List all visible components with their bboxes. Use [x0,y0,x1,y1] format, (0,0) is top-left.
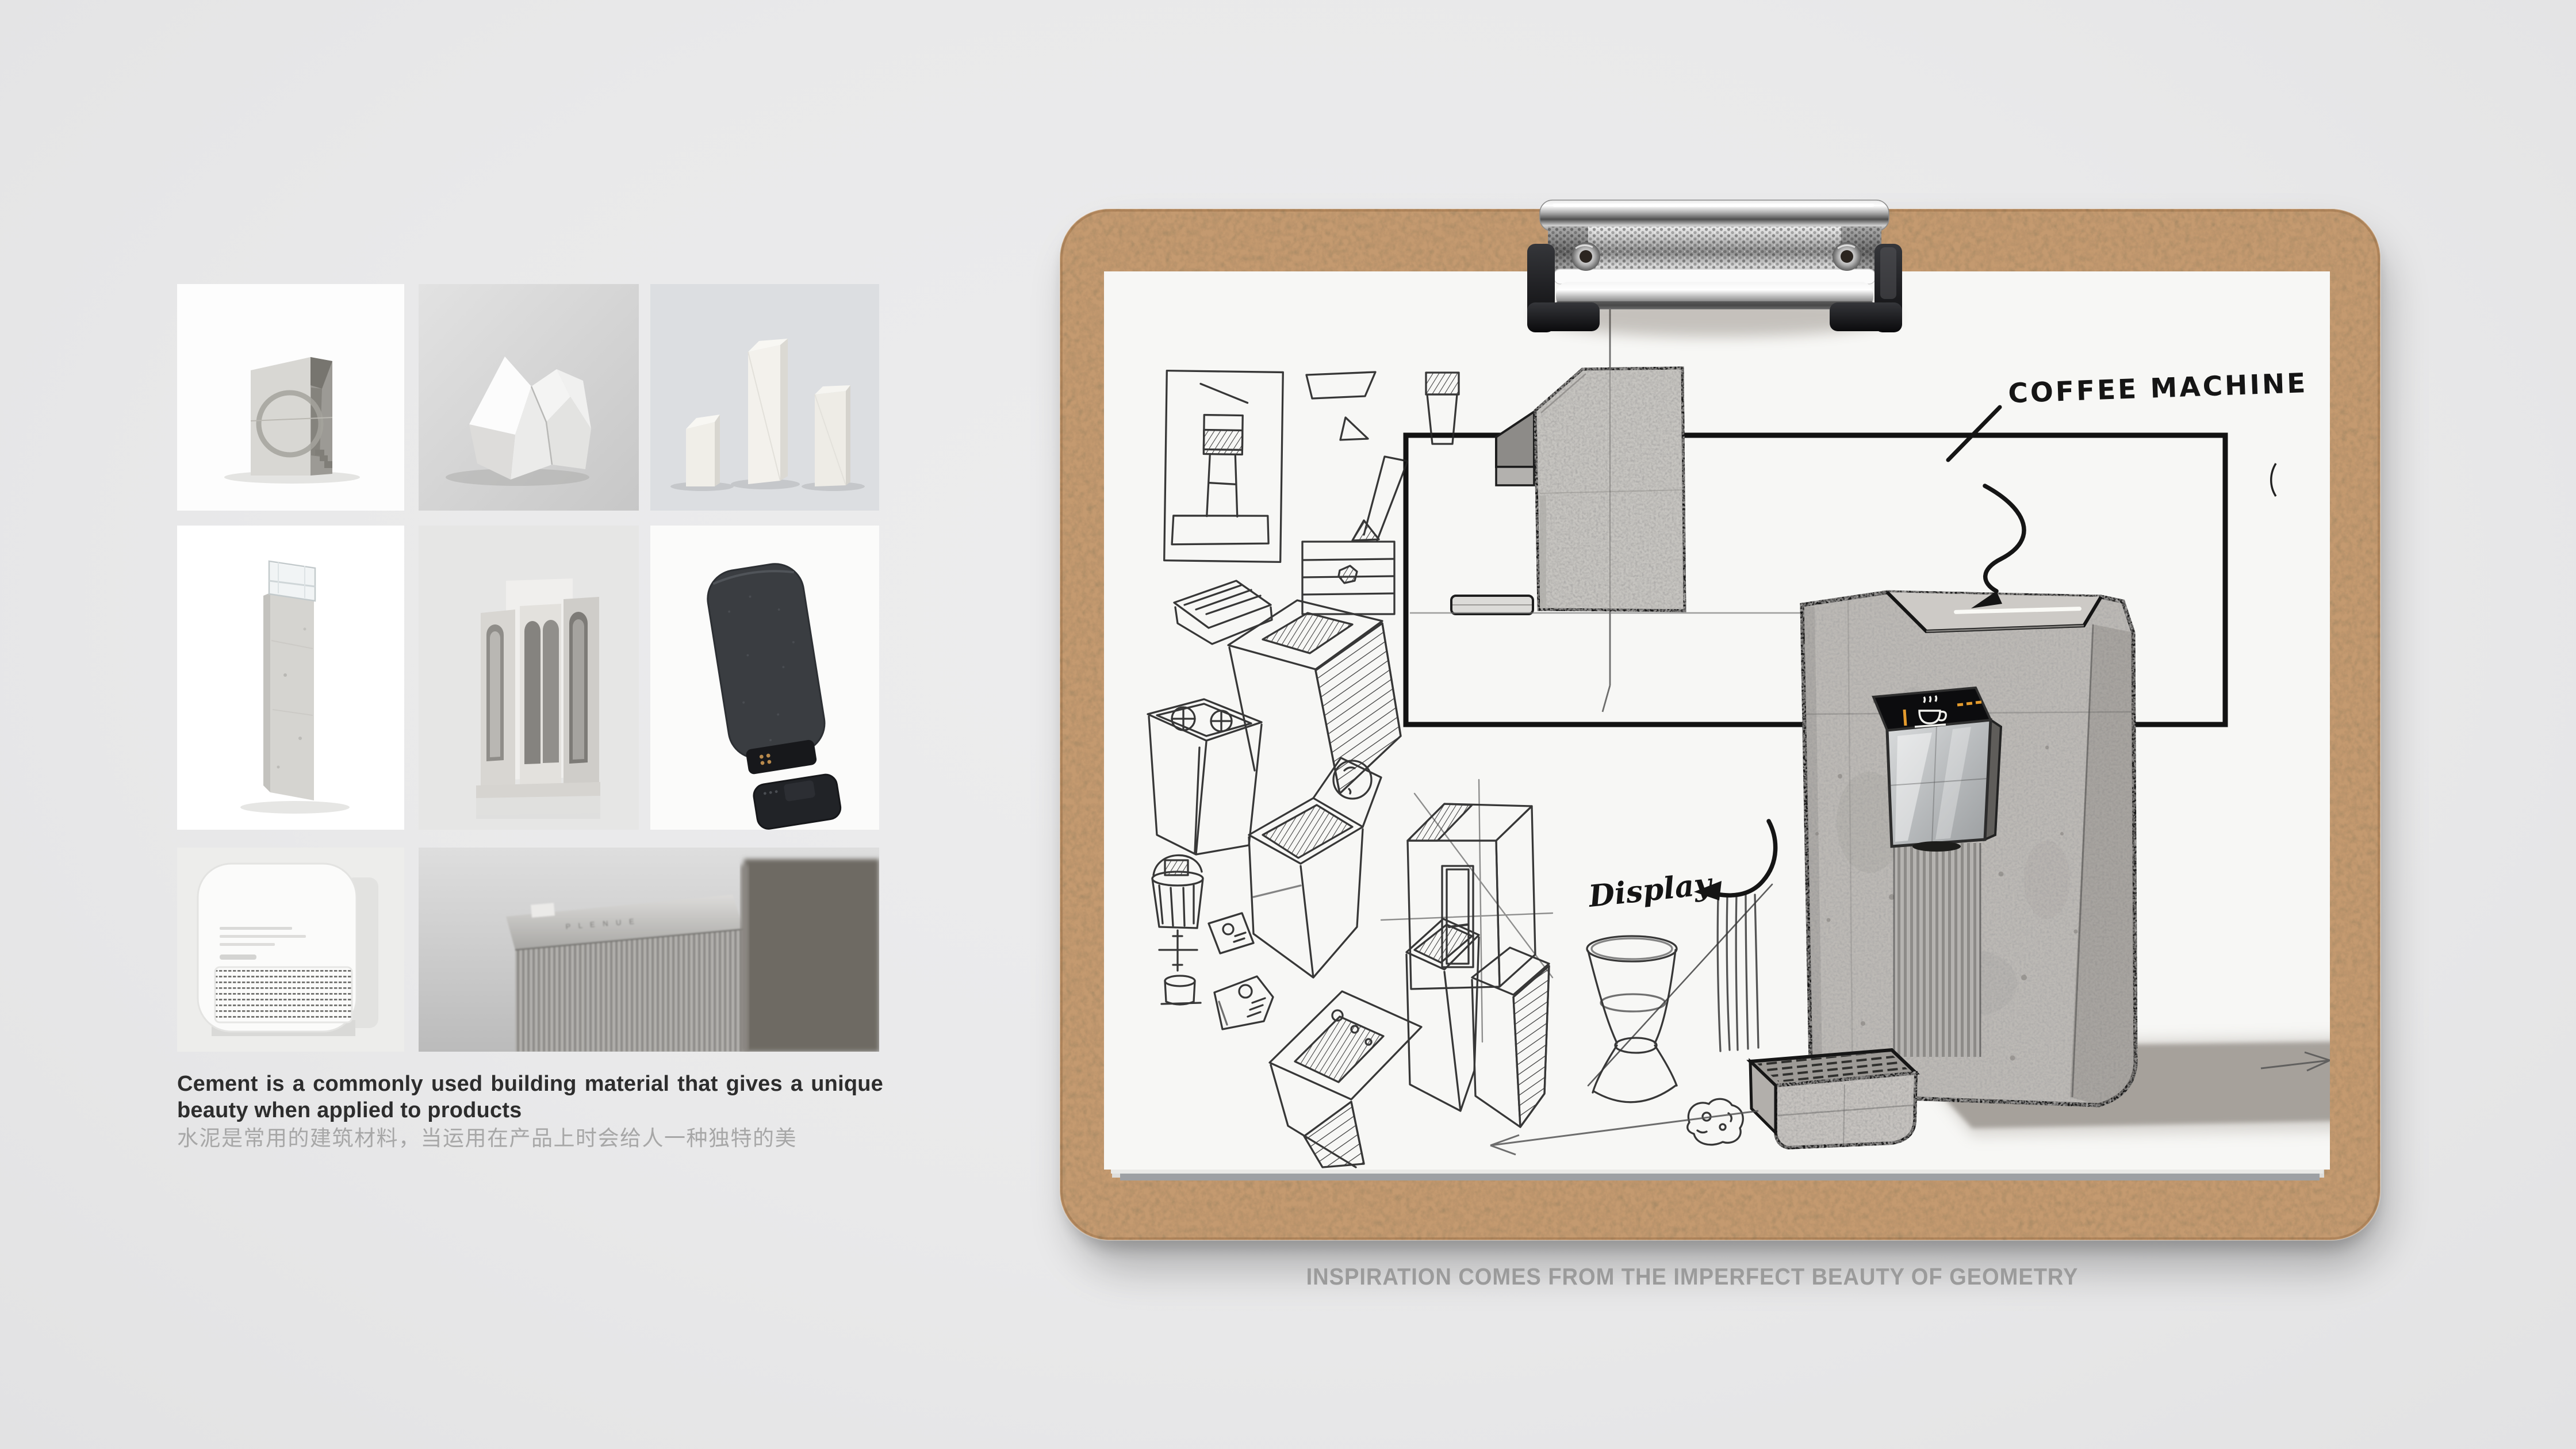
caption-chinese: 水泥是常用的建筑材料，当运用在产品上时会给人一种独特的美 [177,1125,925,1152]
base-drip-tray [1750,1050,1916,1148]
concrete-sculpture-photo [177,284,404,511]
white-appliance-image [177,848,404,1052]
concrete-column-image [177,526,404,830]
arch-tower-image [419,526,639,830]
white-appliance-photo [177,848,404,1052]
faceted-white-form-photo [419,284,639,511]
screen-accent-bar [1904,710,1906,726]
fabric-speaker-image [650,526,879,830]
ribbed-device-image: P L E N U E [419,848,879,1052]
design-presentation-board: P L E N U E Cement is a commonly used bu… [0,0,2576,1449]
white-columns-image [650,284,879,511]
fabric-speaker-photo [650,526,879,830]
concrete-column-lamp-photo [177,526,404,830]
dispenser-module [1873,688,2001,852]
sketch-paper [1104,271,2330,1170]
ribbed-dispenser-column [1894,843,1980,1057]
caption-english: Cement is a commonly used building mater… [177,1071,883,1124]
concrete-sculpture-image [177,284,404,511]
ribbed-device-photo: P L E N U E [419,848,879,1052]
clipboard: COFFEE MACHINE Display [1023,172,2449,1328]
concrete-arch-tower-photo [419,526,639,830]
white-columns-photo [650,284,879,511]
footer-caption: INSPIRATION COMES FROM THE IMPERFECT BEA… [1211,1263,2173,1291]
faceted-form-image [419,284,639,511]
